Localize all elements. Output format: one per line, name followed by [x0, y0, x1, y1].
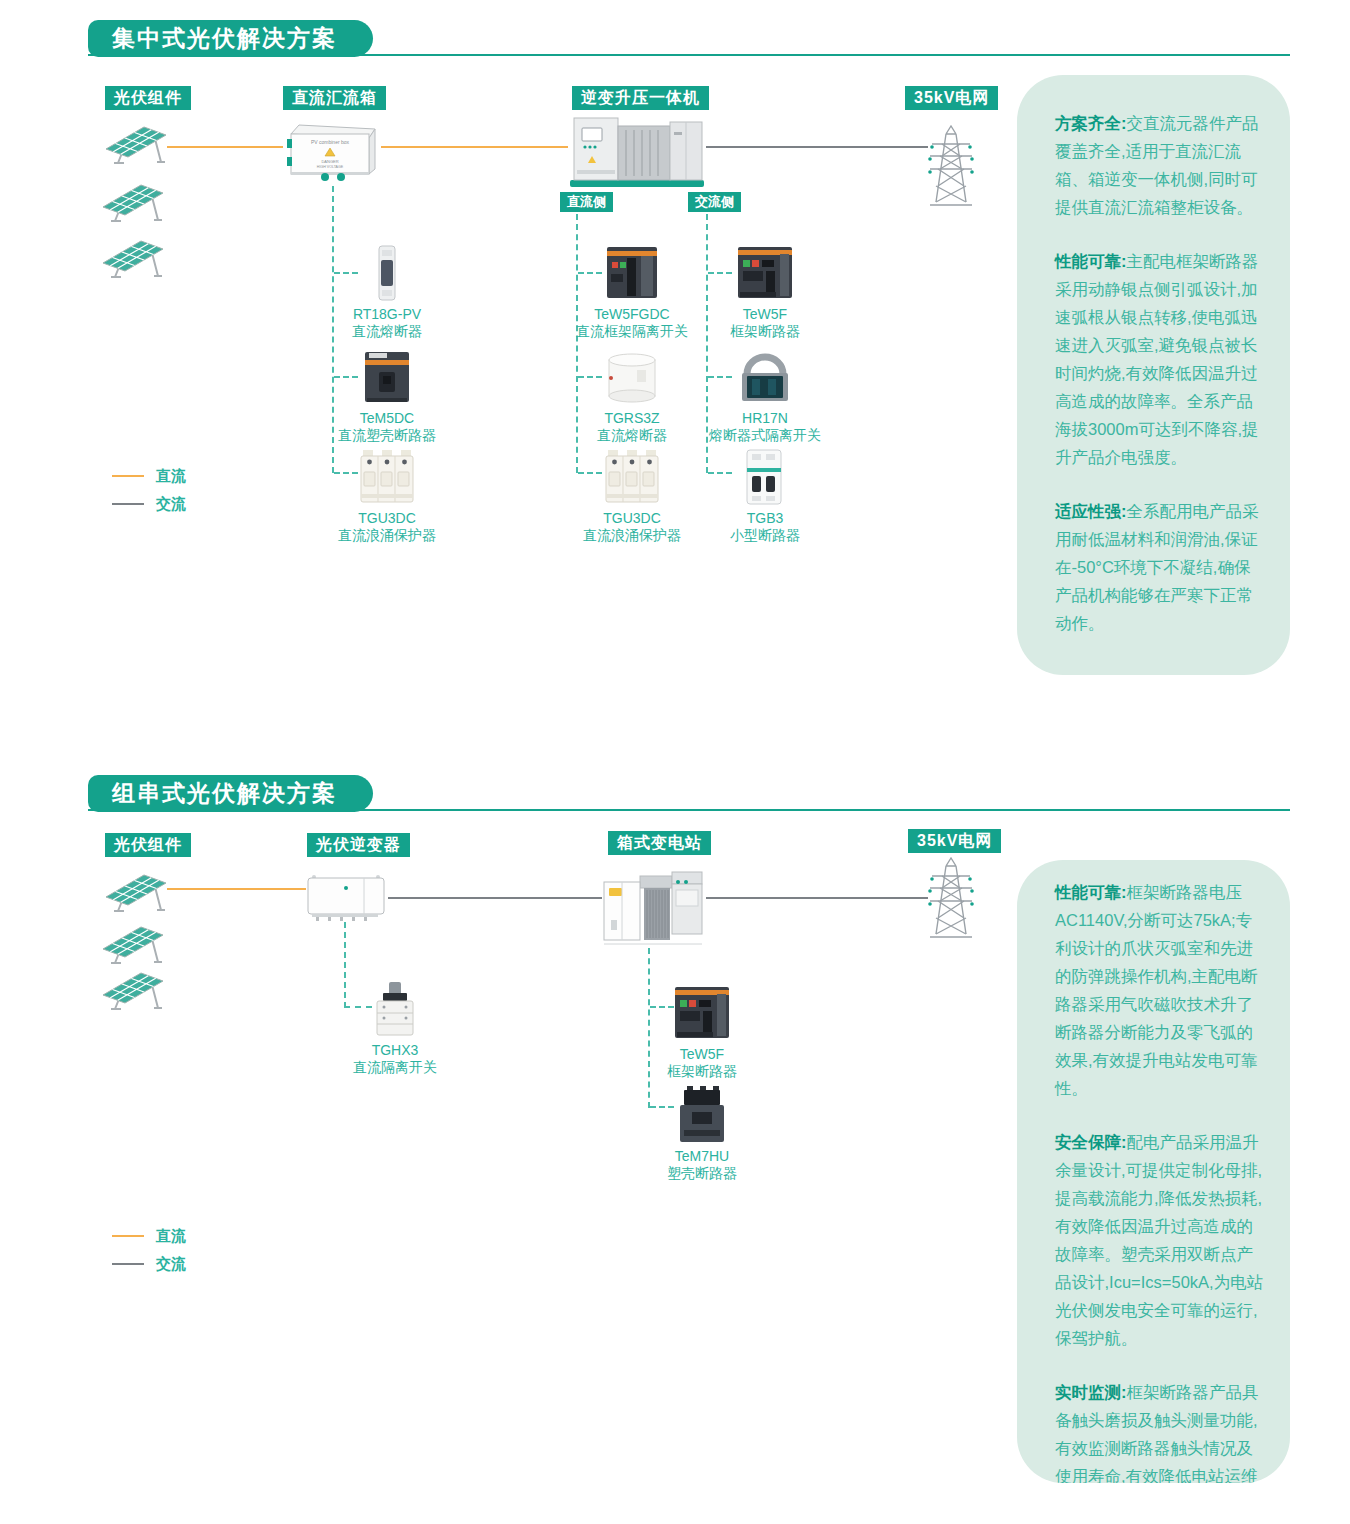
- product-model: HR17N: [700, 410, 830, 427]
- surge-protector-icon: [322, 448, 452, 506]
- product-name: 塑壳断路器: [637, 1165, 767, 1182]
- product-name: 直流浪涌保护器: [322, 527, 452, 544]
- product-rt18g-pv: RT18G-PV 直流熔断器: [322, 244, 452, 340]
- product-hr17n: HR17N 熔断器式隔离开关: [700, 348, 830, 444]
- note-block: 实时监测:框架断路器产品具备触头磨损及触头测量功能,有效监测断路器触头情况及使用…: [1055, 1378, 1266, 1483]
- side-label-dc: 直流侧: [560, 192, 613, 212]
- product-model: TGB3: [700, 510, 830, 527]
- brochure-page: 集中式光伏解决方案 光伏组件 直流汇流箱 逆变升压一体机 35kV电网 PV c…: [0, 0, 1350, 1524]
- transmission-tower-icon: [928, 856, 974, 940]
- section1-title: 集中式光伏解决方案: [88, 20, 373, 57]
- product-name: 框架断路器: [700, 323, 830, 340]
- product-model: TGHX3: [330, 1042, 460, 1059]
- ac-connection-line: [388, 897, 602, 899]
- legend-dc: 直流: [112, 466, 186, 486]
- note-block: 方案齐全:交直流元器件产品覆盖齐全,适用于直流汇流箱、箱逆变一体机侧,同时可提供…: [1055, 109, 1266, 221]
- product-model: TeW5F: [700, 306, 830, 323]
- node-label-combiner-box: 直流汇流箱: [283, 86, 386, 110]
- inverter-station-icon: [568, 112, 706, 190]
- legend-dc: 直流: [112, 1226, 186, 1246]
- product-tem7hu: TeM7HU 塑壳断路器: [637, 1086, 767, 1182]
- air-circuit-breaker-icon: [637, 984, 767, 1042]
- section1-notes-panel: 方案齐全:交直流元器件产品覆盖齐全,适用于直流汇流箱、箱逆变一体机侧,同时可提供…: [1017, 75, 1290, 675]
- miniature-breaker-icon: [700, 448, 830, 506]
- solar-panel-icon: [101, 180, 165, 222]
- product-tgu3dc: TGU3DC 直流浪涌保护器: [567, 448, 697, 544]
- string-inverter-icon: [306, 872, 386, 922]
- legend-ac: 交流: [112, 494, 186, 514]
- product-model: TeW5FGDC: [567, 306, 697, 323]
- solar-panel-icon: [101, 236, 165, 278]
- product-model: TGU3DC: [567, 510, 697, 527]
- note-body: 全系配用电产品采用耐低温材料和润滑油,保证在-50°C环境下不凝结,确保产品机构…: [1055, 502, 1259, 632]
- solar-panel-icon: [101, 922, 165, 964]
- combiner-box-icon: PV combiner box DANGER HIGH VOLTAGE: [283, 120, 381, 186]
- legend-ac-label: 交流: [156, 495, 186, 514]
- molded-case-breaker-icon: [322, 348, 452, 406]
- dc-connection-line: [381, 146, 568, 148]
- dc-connection-line: [167, 146, 283, 148]
- product-name: 直流框架隔离开关: [567, 323, 697, 340]
- note-block: 性能可靠:框架断路器电压AC1140V,分断可达75kA;专利设计的爪状灭弧室和…: [1055, 878, 1266, 1102]
- legend-ac: 交流: [112, 1254, 186, 1274]
- dc-line-swatch: [112, 1235, 144, 1237]
- note-lead: 适应性强:: [1055, 502, 1127, 520]
- solar-panel-icon: [104, 870, 168, 912]
- side-label-ac: 交流侧: [688, 192, 741, 212]
- note-block: 安全保障:配电产品采用温升余量设计,可提供定制化母排,提高载流能力,降低发热损耗…: [1055, 1128, 1266, 1352]
- legend-dc-label: 直流: [156, 1227, 186, 1246]
- product-tghx3: TGHX3 直流隔离开关: [330, 980, 460, 1076]
- product-model: TeM7HU: [637, 1148, 767, 1165]
- ac-line-swatch: [112, 1263, 144, 1265]
- node-label-grid: 35kV电网: [905, 86, 998, 110]
- note-lead: 性能可靠:: [1055, 883, 1127, 901]
- product-model: RT18G-PV: [322, 306, 452, 323]
- note-lead: 安全保障:: [1055, 1133, 1127, 1151]
- legend-dc-label: 直流: [156, 467, 186, 486]
- dc-connection-line: [167, 888, 306, 890]
- section2-notes-panel: 性能可靠:框架断路器电压AC1140V,分断可达75kA;专利设计的爪状灭弧室和…: [1017, 860, 1290, 1483]
- product-name: 直流塑壳断路器: [322, 427, 452, 444]
- dc-isolator-switch-icon: [330, 980, 460, 1038]
- product-name: 直流隔离开关: [330, 1059, 460, 1076]
- node-label-inverter-station: 逆变升压一体机: [572, 86, 709, 110]
- node-label-box-substation: 箱式变电站: [608, 831, 711, 855]
- note-lead: 实时监测:: [1055, 1383, 1127, 1401]
- product-model: TeW5F: [637, 1046, 767, 1063]
- cylindrical-fuse-icon: [567, 348, 697, 406]
- product-name: 直流浪涌保护器: [567, 527, 697, 544]
- product-name: 小型断路器: [700, 527, 830, 544]
- ac-connection-line: [706, 897, 928, 899]
- note-lead: 方案齐全:: [1055, 114, 1127, 132]
- product-name: 框架断路器: [637, 1063, 767, 1080]
- product-name: 直流熔断器: [322, 323, 452, 340]
- combiner-box-text: PV combiner box: [311, 139, 350, 145]
- product-tew5f: TeW5F 框架断路器: [700, 244, 830, 340]
- node-label-string-inverter: 光伏逆变器: [307, 833, 410, 857]
- box-substation-icon: [602, 868, 704, 948]
- molded-case-breaker-icon: [637, 1086, 767, 1144]
- note-body: 配电产品采用温升余量设计,可提供定制化母排,提高载流能力,降低发热损耗,有效降低…: [1055, 1133, 1263, 1347]
- surge-protector-icon: [567, 448, 697, 506]
- node-label-grid: 35kV电网: [908, 829, 1001, 853]
- fuse-switch-disconnector-icon: [700, 348, 830, 406]
- product-tgb3: TGB3 小型断路器: [700, 448, 830, 544]
- air-circuit-breaker-icon: [700, 244, 830, 302]
- dc-fuse-icon: [322, 244, 452, 302]
- product-model: TGU3DC: [322, 510, 452, 527]
- note-lead: 性能可靠:: [1055, 252, 1127, 270]
- note-block: 适应性强:全系配用电产品采用耐低温材料和润滑油,保证在-50°C环境下不凝结,确…: [1055, 497, 1266, 637]
- product-name: 熔断器式隔离开关: [700, 427, 830, 444]
- note-body: 主配电框架断路器采用动静银点侧引弧设计,加速弧根从银点转移,使电弧迅速进入灭弧室…: [1055, 252, 1259, 466]
- product-tgu3dc: TGU3DC 直流浪涌保护器: [322, 448, 452, 544]
- solar-panel-icon: [101, 968, 165, 1010]
- node-label-pv-modules: 光伏组件: [105, 86, 191, 110]
- product-tem5dc: TeM5DC 直流塑壳断路器: [322, 348, 452, 444]
- node-label-pv-modules: 光伏组件: [105, 833, 191, 857]
- product-model: TGRS3Z: [567, 410, 697, 427]
- note-body: 框架断路器电压AC1140V,分断可达75kA;专利设计的爪状灭弧室和先进的防弹…: [1055, 883, 1258, 1097]
- section2-title: 组串式光伏解决方案: [88, 775, 373, 812]
- ac-line-swatch: [112, 503, 144, 505]
- product-tew5f: TeW5F 框架断路器: [637, 984, 767, 1080]
- product-name: 直流熔断器: [567, 427, 697, 444]
- note-block: 性能可靠:主配电框架断路器采用动静银点侧引弧设计,加速弧根从银点转移,使电弧迅速…: [1055, 247, 1266, 471]
- combiner-warning-text2: HIGH VOLTAGE: [317, 165, 344, 169]
- dc-line-swatch: [112, 475, 144, 477]
- product-tgrs3z: TGRS3Z 直流熔断器: [567, 348, 697, 444]
- product-model: TeM5DC: [322, 410, 452, 427]
- legend-ac-label: 交流: [156, 1255, 186, 1274]
- frame-isolator-icon: [567, 244, 697, 302]
- ac-connection-line: [706, 146, 928, 148]
- product-tew5fgdc: TeW5FGDC 直流框架隔离开关: [567, 244, 697, 340]
- transmission-tower-icon: [928, 124, 974, 208]
- combiner-warning-text: DANGER: [321, 159, 338, 164]
- solar-panel-icon: [104, 122, 168, 164]
